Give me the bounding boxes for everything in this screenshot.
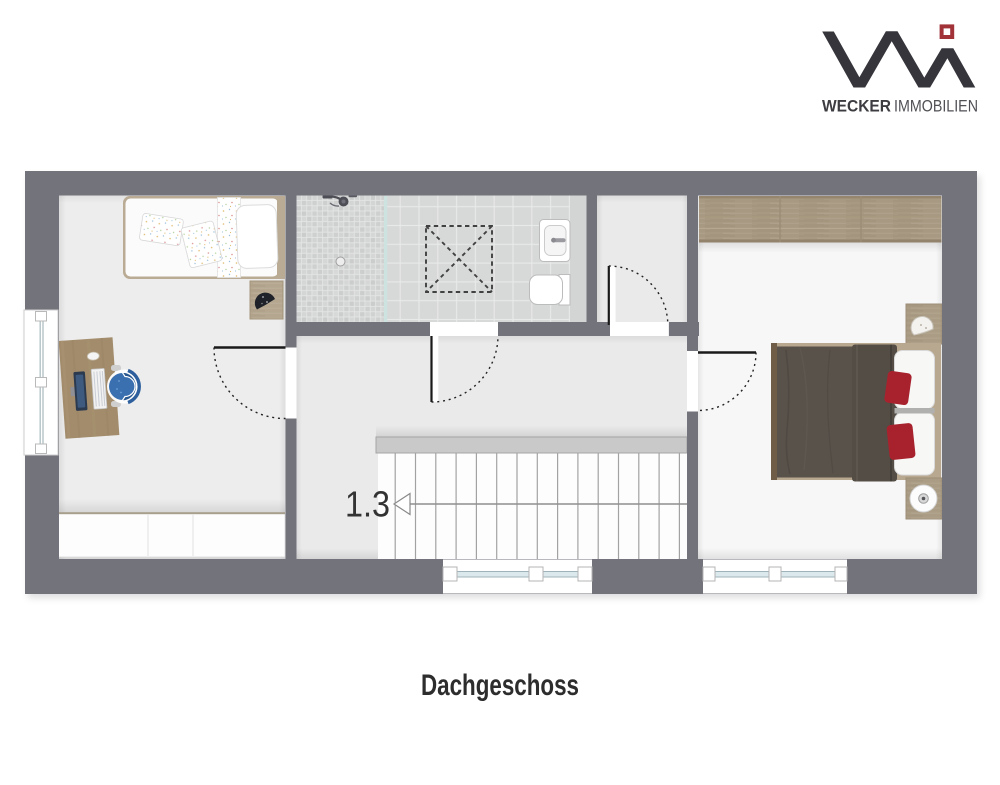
svg-text:IMMOBILIEN: IMMOBILIEN <box>894 97 978 116</box>
svg-text:1.3: 1.3 <box>345 484 390 525</box>
svg-text:Dachgeschoss: Dachgeschoss <box>421 669 579 702</box>
svg-text:WECKER: WECKER <box>822 97 891 116</box>
